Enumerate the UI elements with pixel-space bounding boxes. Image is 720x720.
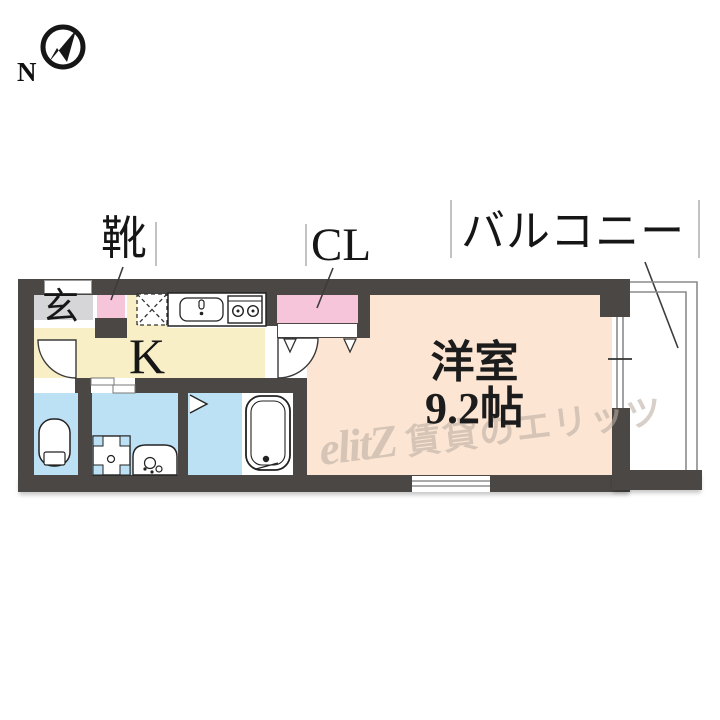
wall-stub-counter [265, 295, 277, 326]
washroom-floor [92, 393, 178, 475]
compass-north-label: N [17, 59, 37, 86]
wall-toilet-wash [78, 393, 92, 475]
main-room-size: 9.2帖 [392, 386, 557, 432]
wall-wet-a [75, 378, 91, 393]
toilet-room-floor [33, 393, 78, 475]
wall-wash-bath [178, 393, 188, 475]
wall-bath-room [293, 393, 307, 475]
bottom-window-gap [412, 476, 490, 492]
balcony-railing [630, 282, 697, 470]
balcony-callout-label: バルコニー [461, 210, 685, 254]
compass-north-icon [43, 27, 83, 67]
wall-stub-closet [358, 293, 370, 338]
shoe-cabinet [97, 292, 125, 320]
wall-stub-shoebox [95, 318, 127, 338]
balcony-leader-line [645, 262, 678, 348]
closet-callout-label: CL [311, 222, 371, 269]
wall-right-top [600, 295, 630, 317]
balcony-bottom-wall [612, 470, 702, 490]
sink-icon [180, 298, 223, 321]
kitchen-room-label: K [129, 331, 165, 381]
wall-right-bottom [612, 408, 630, 475]
entrance-room-label: 玄 [42, 289, 79, 326]
kitchen-floor-upper [127, 295, 168, 328]
stove-icon [228, 296, 262, 323]
wall-top [18, 279, 630, 295]
bathtub-area-floor [242, 393, 293, 475]
wall-bottom [18, 475, 630, 492]
main-room-label: 洋室 9.2帖 [392, 340, 557, 432]
main-room-name: 洋室 [392, 340, 557, 386]
wall-left [18, 279, 34, 492]
closet-door-strip [277, 323, 358, 338]
balcony-window-gap [612, 317, 630, 408]
shoes-callout-label: 靴 [101, 216, 147, 262]
kitchen-counter [168, 293, 266, 326]
bathroom-floor [188, 393, 242, 475]
closet-floor [275, 293, 358, 323]
floorplan-canvas: elitZ 賃貸のエリッツ [0, 0, 720, 720]
